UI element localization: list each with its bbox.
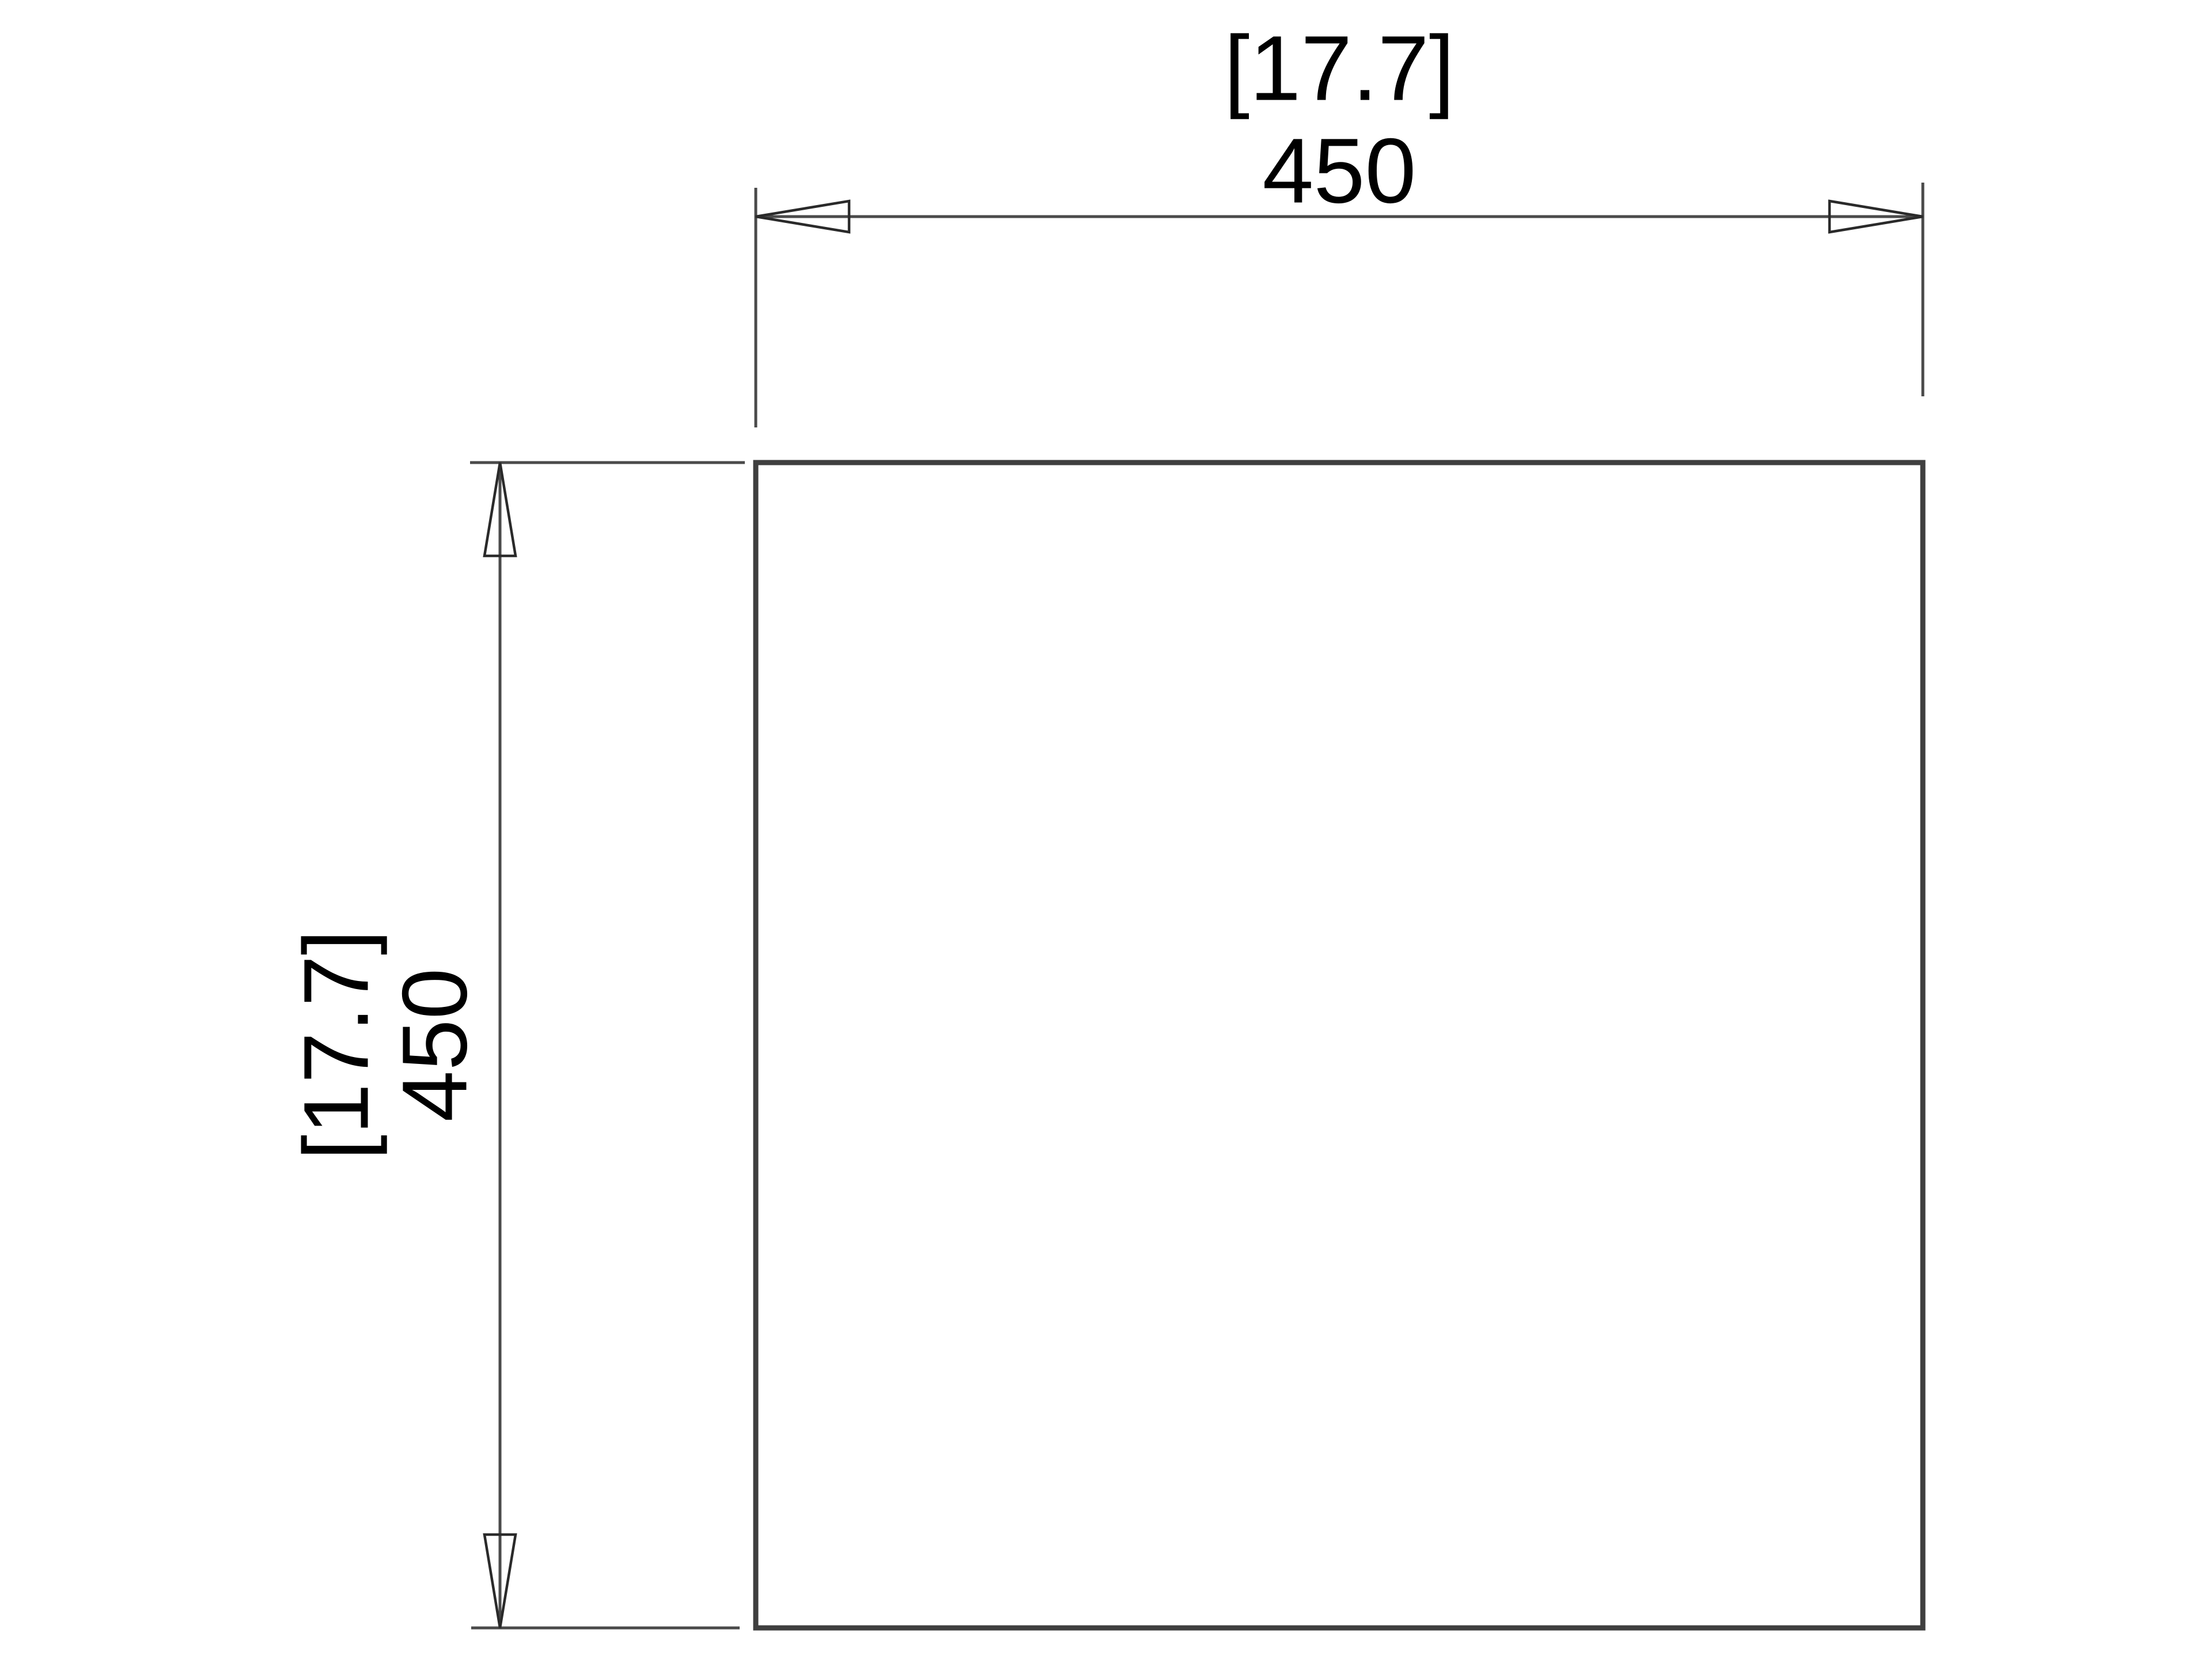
part-outline	[756, 463, 1923, 1628]
width-label-mm: 450	[1263, 119, 1416, 222]
width-label-inches: [17.7]	[1224, 17, 1455, 120]
dimension-drawing: [17.7] 450 [17.7] 450	[0, 0, 2212, 1659]
height-label-mm: 450	[383, 968, 486, 1122]
height-dimension: [17.7] 450	[285, 463, 745, 1628]
height-label-inches: [17.7]	[285, 930, 388, 1160]
width-dimension: [17.7] 450	[756, 17, 1923, 428]
